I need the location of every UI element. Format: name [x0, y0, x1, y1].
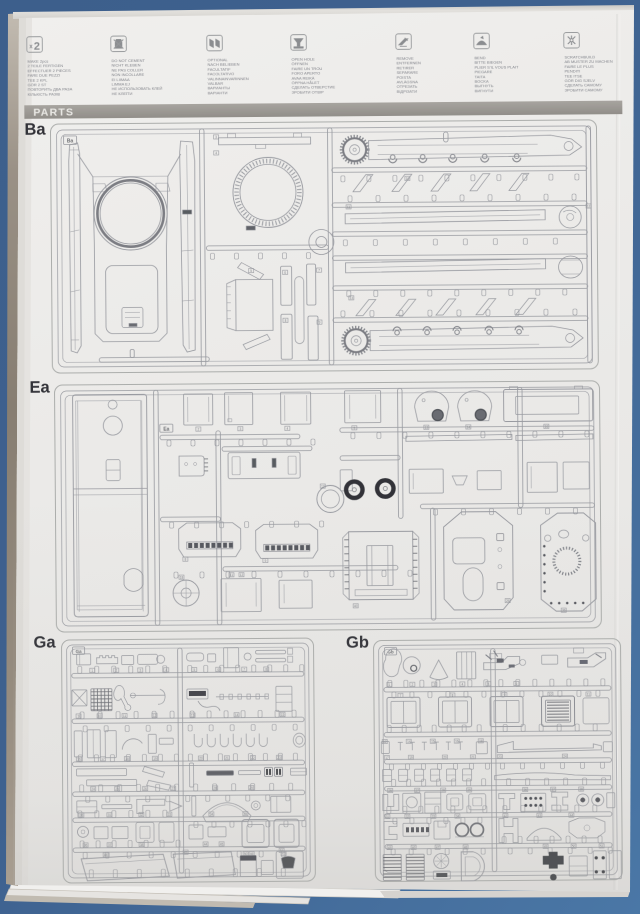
- svg-text:12: 12: [587, 204, 591, 208]
- svg-text:4: 4: [286, 427, 288, 431]
- svg-text:ЗРОБИТИ САМОМУ: ЗРОБИТИ САМОМУ: [565, 87, 603, 92]
- svg-text:2: 2: [197, 428, 199, 432]
- svg-text:5: 5: [250, 269, 252, 273]
- svg-text:Ba: Ba: [67, 138, 74, 144]
- svg-text:Ba: Ba: [24, 121, 46, 139]
- svg-text:ЗРОБИТИ ОТВІР: ЗРОБИТИ ОТВІР: [292, 89, 324, 94]
- svg-text:КІЛЬКІСТЬ РАЗІВ: КІЛЬКІСТЬ РАЗІВ: [28, 91, 61, 96]
- svg-text:13: 13: [350, 296, 354, 300]
- svg-text:14: 14: [467, 425, 471, 429]
- svg-text:Ea: Ea: [163, 426, 169, 432]
- svg-text:3: 3: [215, 135, 217, 139]
- svg-text:11: 11: [347, 205, 351, 209]
- svg-text:PARTS: PARTS: [33, 107, 74, 119]
- svg-text:ВАРІАНТИ: ВАРІАНТИ: [208, 90, 228, 95]
- svg-text:5: 5: [353, 426, 355, 430]
- svg-text:7: 7: [318, 269, 320, 273]
- svg-text:8: 8: [285, 319, 287, 323]
- svg-text:НЕ КЛЕЇТИ: НЕ КЛЕЇТИ: [112, 91, 133, 96]
- svg-text:Ea: Ea: [29, 379, 50, 397]
- svg-text:2: 2: [34, 40, 40, 52]
- svg-text:ВИГНУТИ: ВИГНУТИ: [475, 88, 494, 93]
- svg-text:4: 4: [215, 151, 217, 155]
- svg-text:10: 10: [406, 177, 410, 181]
- svg-text:ВІДРІЗАТИ: ВІДРІЗАТИ: [397, 89, 418, 94]
- svg-text:16: 16: [545, 425, 549, 429]
- svg-text:6: 6: [284, 271, 286, 275]
- svg-text:9: 9: [319, 321, 321, 325]
- svg-text:13: 13: [425, 426, 429, 430]
- svg-text:3: 3: [239, 427, 241, 431]
- svg-text:17: 17: [321, 485, 325, 489]
